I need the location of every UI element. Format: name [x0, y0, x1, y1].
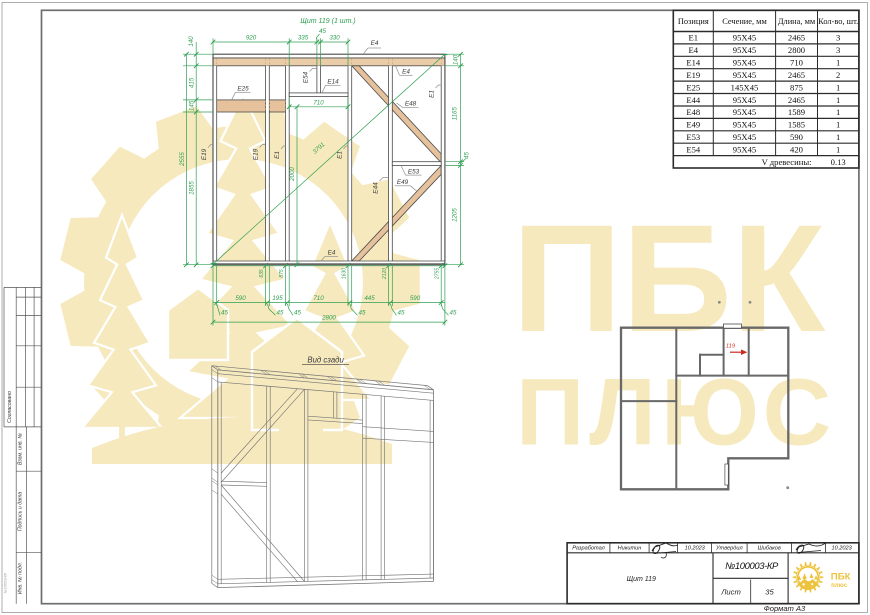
- svg-text:E19: E19: [253, 148, 260, 160]
- svg-text:E1: E1: [274, 151, 281, 159]
- svg-text:Никитин: Никитин: [618, 545, 642, 551]
- svg-text:45: 45: [294, 309, 301, 316]
- svg-text:875: 875: [279, 269, 285, 278]
- svg-text:2800: 2800: [788, 45, 805, 55]
- svg-text:Вид сзади: Вид сзади: [307, 355, 344, 364]
- svg-text:95X45: 95X45: [733, 33, 756, 43]
- svg-text:1165: 1165: [452, 106, 459, 120]
- svg-text:590: 590: [410, 295, 421, 302]
- svg-text:Сечение, мм: Сечение, мм: [722, 17, 767, 26]
- svg-text:E4: E4: [402, 69, 410, 76]
- svg-text:E19: E19: [686, 70, 700, 80]
- svg-text:45: 45: [221, 309, 228, 316]
- svg-text:45: 45: [319, 28, 326, 35]
- svg-text:E54: E54: [686, 144, 701, 154]
- svg-text:95X45: 95X45: [733, 70, 756, 80]
- svg-text:Формат А3: Формат А3: [764, 604, 806, 613]
- svg-text:E19: E19: [201, 148, 208, 160]
- svg-text:1630: 1630: [341, 268, 347, 279]
- svg-text:2465: 2465: [788, 95, 805, 105]
- svg-text:95X45: 95X45: [733, 120, 756, 130]
- svg-text:Щит 119 (1 шт.): Щит 119 (1 шт.): [300, 18, 355, 25]
- svg-text:плюс: плюс: [831, 583, 847, 589]
- svg-text:45: 45: [463, 152, 470, 159]
- svg-text:E14: E14: [327, 79, 339, 86]
- svg-text:119: 119: [726, 344, 736, 350]
- svg-text:2800: 2800: [321, 314, 336, 321]
- svg-text:45: 45: [277, 309, 284, 316]
- svg-text:Лист: Лист: [720, 587, 741, 596]
- svg-text:10.2023: 10.2023: [685, 545, 706, 551]
- svg-text:E14: E14: [686, 58, 701, 68]
- svg-text:195: 195: [272, 295, 283, 302]
- svg-text:0.13: 0.13: [831, 157, 846, 167]
- svg-text:E4: E4: [371, 40, 379, 47]
- svg-text:95X45: 95X45: [733, 107, 756, 117]
- svg-text:1: 1: [836, 95, 840, 105]
- svg-text:710: 710: [313, 99, 324, 106]
- svg-text:E49: E49: [397, 179, 409, 186]
- svg-text:№100003-КР: №100003-КР: [4, 572, 8, 593]
- svg-text:2755: 2755: [435, 268, 441, 280]
- svg-text:3: 3: [836, 45, 840, 55]
- svg-text:875: 875: [790, 82, 803, 92]
- svg-text:2120: 2120: [382, 268, 388, 280]
- svg-text:Согласовано: Согласовано: [7, 391, 13, 423]
- svg-text:95X45: 95X45: [733, 144, 756, 154]
- svg-text:590: 590: [790, 132, 803, 142]
- svg-text:145: 145: [189, 100, 196, 111]
- svg-text:335: 335: [298, 34, 309, 41]
- svg-text:E48: E48: [686, 107, 700, 117]
- svg-text:1585: 1585: [788, 120, 805, 130]
- svg-text:1: 1: [836, 107, 840, 117]
- svg-text:E48: E48: [405, 101, 417, 108]
- svg-text:45: 45: [398, 309, 405, 316]
- svg-text:E53: E53: [408, 168, 420, 175]
- svg-text:E25: E25: [686, 82, 700, 92]
- svg-text:710: 710: [313, 295, 324, 302]
- svg-text:Разработал: Разработал: [572, 545, 605, 551]
- svg-text:ПБК: ПБК: [512, 193, 826, 364]
- svg-text:E44: E44: [686, 95, 701, 105]
- svg-text:35: 35: [765, 587, 774, 596]
- svg-text:Утвердил: Утвердил: [715, 545, 743, 551]
- svg-text:635: 635: [259, 269, 265, 278]
- svg-text:Инв. № подл.: Инв. № подл.: [18, 562, 24, 594]
- svg-text:1: 1: [836, 58, 840, 68]
- svg-text:№100003-КР: №100003-КР: [725, 560, 779, 571]
- svg-text:2465: 2465: [788, 33, 805, 43]
- svg-text:E1: E1: [337, 151, 344, 159]
- svg-text:1: 1: [836, 144, 840, 154]
- svg-text:2: 2: [836, 70, 840, 80]
- svg-text:E4: E4: [689, 45, 699, 55]
- svg-text:1205: 1205: [452, 208, 459, 222]
- svg-text:95X45: 95X45: [733, 95, 756, 105]
- svg-text:Шибаков: Шибаков: [758, 545, 781, 551]
- svg-text:1: 1: [836, 82, 840, 92]
- svg-text:45: 45: [450, 309, 457, 316]
- svg-text:E54: E54: [303, 71, 310, 83]
- svg-text:ПБК: ПБК: [831, 571, 851, 582]
- svg-text:E1: E1: [689, 33, 699, 43]
- svg-text:E53: E53: [686, 132, 700, 142]
- svg-text:140: 140: [452, 54, 459, 65]
- svg-text:E49: E49: [686, 120, 700, 130]
- svg-text:140: 140: [188, 36, 195, 47]
- svg-text:E44: E44: [373, 182, 380, 194]
- svg-text:710: 710: [790, 58, 803, 68]
- svg-text:2465: 2465: [788, 70, 805, 80]
- svg-text:330: 330: [329, 34, 340, 41]
- svg-text:1589: 1589: [788, 107, 805, 117]
- svg-text:2555: 2555: [179, 152, 186, 167]
- svg-text:Щит 119: Щит 119: [627, 576, 656, 583]
- svg-text:445: 445: [364, 295, 375, 302]
- svg-text:E4: E4: [328, 250, 336, 257]
- svg-text:10.2023: 10.2023: [831, 545, 852, 551]
- svg-text:2000: 2000: [289, 167, 296, 182]
- svg-text:1: 1: [836, 132, 840, 142]
- svg-text:95X45: 95X45: [733, 58, 756, 68]
- svg-text:Кол-во, шт.: Кол-во, шт.: [818, 17, 858, 26]
- svg-text:1855: 1855: [189, 181, 196, 195]
- svg-text:3: 3: [836, 33, 840, 43]
- svg-text:V древесины:: V древесины:: [762, 157, 812, 167]
- svg-text:Взам. инв. №: Взам. инв. №: [18, 433, 24, 465]
- svg-text:415: 415: [189, 77, 196, 88]
- svg-text:95X45: 95X45: [733, 45, 756, 55]
- svg-text:1: 1: [836, 120, 840, 130]
- svg-text:95X45: 95X45: [733, 132, 756, 142]
- svg-text:920: 920: [246, 34, 257, 41]
- svg-text:E1: E1: [429, 90, 436, 98]
- svg-text:E25: E25: [237, 86, 249, 93]
- svg-text:Подпись и дата: Подпись и дата: [18, 492, 24, 531]
- svg-text:420: 420: [790, 144, 803, 154]
- svg-text:Длина, мм: Длина, мм: [778, 17, 816, 26]
- svg-text:45: 45: [359, 309, 366, 316]
- svg-text:590: 590: [235, 295, 246, 302]
- svg-text:145X45: 145X45: [731, 82, 759, 92]
- svg-text:Позиция: Позиция: [678, 17, 709, 26]
